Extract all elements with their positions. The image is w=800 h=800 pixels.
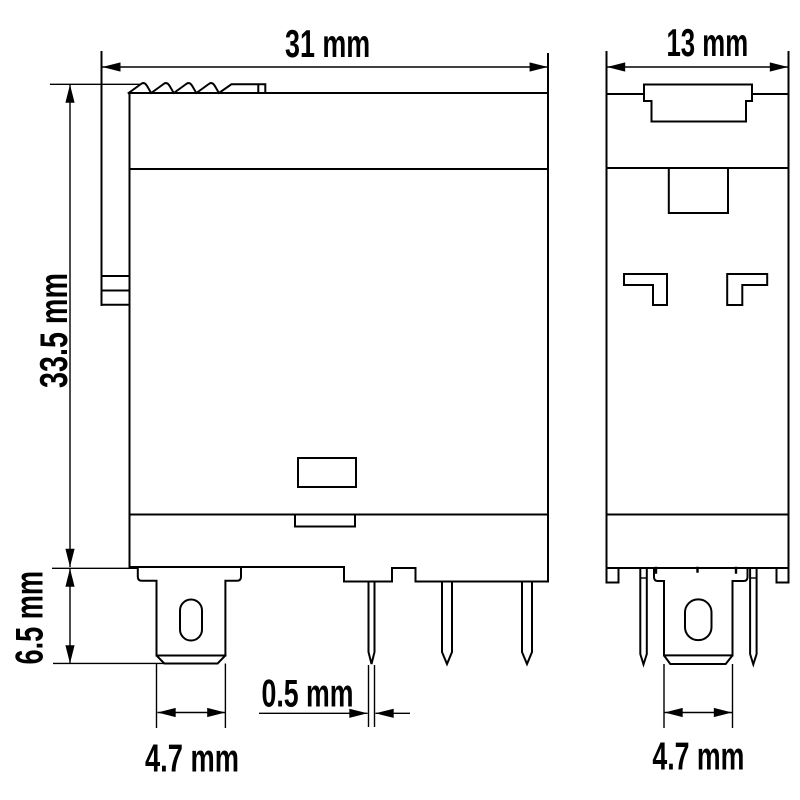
svg-text:4.7 mm: 4.7 mm: [652, 735, 744, 778]
svg-text:4.7 mm: 4.7 mm: [145, 738, 239, 781]
svg-text:13 mm: 13 mm: [666, 22, 748, 65]
svg-text:6.5 mm: 6.5 mm: [9, 571, 52, 665]
svg-text:33.5 mm: 33.5 mm: [33, 273, 76, 388]
svg-text:31 mm: 31 mm: [285, 23, 370, 66]
svg-text:0.5 mm: 0.5 mm: [262, 672, 354, 715]
